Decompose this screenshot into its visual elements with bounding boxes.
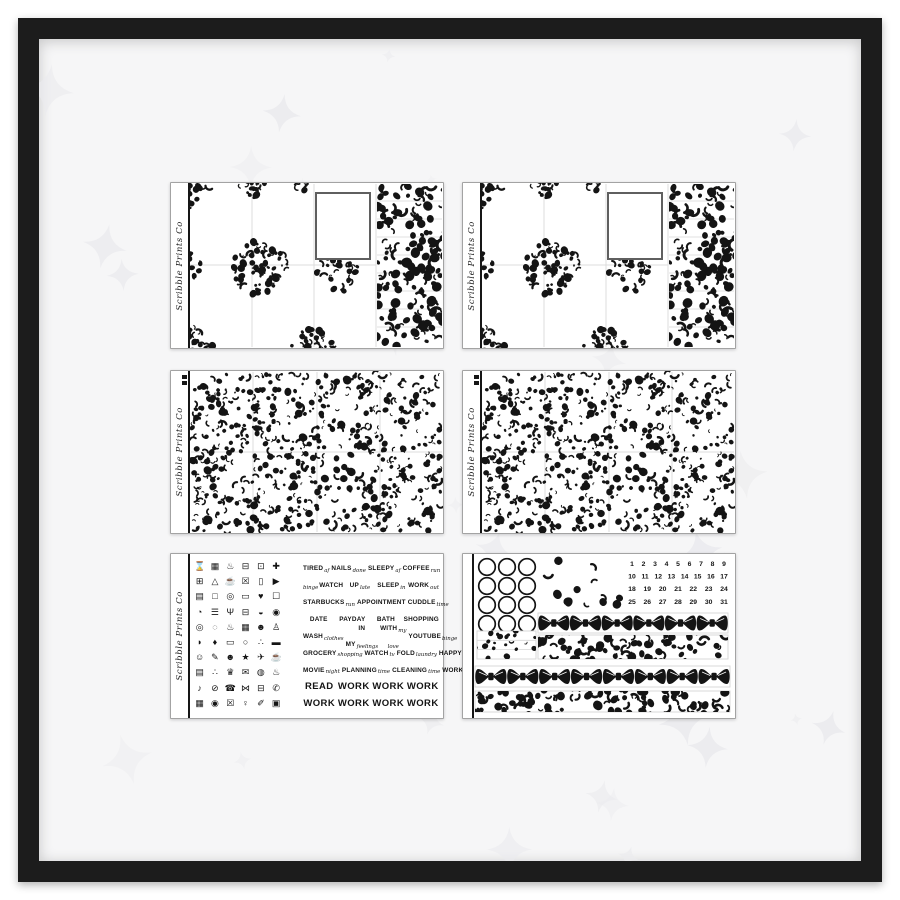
spot-blob [499, 403, 507, 411]
spot-crescent [579, 400, 581, 404]
spot-blob [588, 470, 593, 474]
spot-blob [407, 457, 410, 460]
spot-blob [190, 424, 196, 431]
spot-crescent [417, 430, 418, 433]
spot-crescent [194, 487, 199, 489]
spot-blob [325, 263, 330, 268]
spot-blob [336, 419, 347, 430]
spot-crescent [263, 251, 266, 258]
spot-crescent [530, 501, 533, 502]
spot-crescent [515, 522, 522, 524]
spot-blob [482, 206, 484, 209]
spot-blob [486, 196, 493, 202]
spot-crescent [506, 445, 510, 448]
spot-crescent [391, 398, 394, 404]
spot-crescent [194, 514, 198, 515]
spot-crescent [713, 331, 716, 334]
spot-crescent [730, 374, 731, 376]
spot-crescent [663, 452, 666, 454]
spot-crescent [706, 199, 712, 201]
spot-crescent [687, 504, 688, 507]
spot-blob [340, 287, 348, 294]
spot-crescent [395, 504, 396, 507]
spot-blob [508, 477, 512, 481]
spot-crescent [219, 444, 220, 446]
spot-crescent [705, 208, 708, 214]
eye-icon: ◉ [268, 605, 283, 620]
spot-crescent [264, 491, 265, 494]
spot-blob [612, 403, 619, 409]
label-main-word: WORK [338, 698, 370, 709]
spot-blob [190, 327, 193, 333]
paw-print-icon: ∴ [207, 665, 222, 680]
play-button-icon: ▶ [268, 574, 283, 589]
spot-blob [397, 417, 406, 425]
spot-blob [323, 345, 327, 348]
spot-blob [229, 400, 233, 404]
spot-blob [296, 470, 301, 474]
spot-blob [211, 492, 219, 500]
spot-blob [370, 493, 379, 503]
spot-blob [600, 409, 603, 413]
paint-cup-icon: ◔ [192, 605, 207, 620]
spot-crescent [257, 247, 261, 248]
spot-blob [632, 475, 640, 483]
spot-blob [246, 525, 255, 533]
spot-blob [267, 379, 273, 385]
spot-crescent [511, 444, 512, 446]
spot-blob [700, 239, 710, 248]
hair-bow-icon: ⋈ [238, 681, 253, 696]
brand-name: Scribble Prints Co [467, 221, 477, 311]
date-number-sticker: 4 [665, 561, 669, 568]
brand-name: Scribble Prints Co [175, 591, 185, 681]
spot-blob [527, 434, 532, 438]
spot-crescent [414, 338, 419, 339]
spot-blob [571, 446, 575, 450]
spot-blob [589, 475, 593, 479]
spot-blob [235, 434, 240, 438]
bow-knot [648, 673, 653, 680]
date-number-sticker: 6 [688, 561, 692, 568]
spot-blob [619, 275, 626, 282]
spot-crescent [657, 423, 660, 426]
sticker-sheet-date-dots-washi: 1234567891011121314151617181920212223242… [462, 553, 736, 719]
spot-blob [238, 448, 244, 454]
spot-blob [662, 493, 671, 503]
sticker-word-label: UPlate [344, 575, 375, 591]
spot-blob [424, 339, 429, 344]
spot-blob [634, 509, 638, 513]
spot-crescent [706, 299, 708, 305]
spot-blob [424, 526, 433, 533]
spot-crescent [576, 267, 580, 270]
spot-crescent [206, 415, 208, 416]
spot-crescent [323, 420, 324, 423]
lotion-bottle-icon: ♨ [223, 559, 238, 574]
spot-crescent [665, 371, 670, 374]
picture-frame: Scribble Prints Co Scribble Prints Co Sc… [18, 18, 882, 882]
spot-crescent [613, 461, 615, 467]
spot-blob [694, 424, 700, 430]
bow-knot [552, 673, 557, 680]
spot-crescent [614, 338, 616, 341]
label-main-word: PLANNING [342, 667, 377, 674]
spot-blob [482, 424, 488, 431]
sticker-sheet-full-pattern-left: Scribble Prints Co [170, 370, 444, 534]
spot-blob [287, 422, 291, 426]
spot-blob [641, 427, 648, 434]
spot-blob [694, 316, 703, 325]
spot-blob [426, 215, 434, 223]
date-number-sticker: 22 [690, 586, 698, 593]
date-number-sticker: 2 [642, 561, 646, 568]
spot-blob [559, 379, 565, 385]
spot-blob [312, 407, 315, 409]
spot-crescent [202, 453, 204, 458]
spot-crescent [734, 232, 735, 235]
spot-crescent [503, 377, 507, 381]
spot-blob [403, 396, 407, 400]
kettle-icon: ♨ [268, 665, 283, 680]
spot-blob [392, 483, 396, 488]
brand-name: Scribble Prints Co [175, 407, 185, 497]
spot-crescent [349, 528, 350, 532]
spot-blob [537, 433, 542, 438]
sticker-sheet-weekly-boxes-right: Scribble Prints Co [462, 182, 736, 349]
spot-blob [204, 493, 209, 497]
spot-blob [587, 646, 594, 652]
spot-blob [221, 428, 226, 433]
sticker-word-label: WORKout [407, 575, 440, 591]
date-number-sticker: 17 [720, 574, 728, 581]
doodle-icons-grid: ⌛▦♨⊟⊡✚⊞△☕☒▯▶▤□◎▭♥☐◔☰Ψ⊟◒◉◎◌♨▦☻♙◗♦▭○∴▬☺✎☻★… [192, 559, 284, 711]
spot-blob [537, 440, 542, 445]
spot-blob [556, 287, 563, 295]
label-main-word: WORK [303, 698, 335, 709]
spot-crescent [215, 393, 216, 395]
sticker-word-label: CUDDLEtime [407, 592, 450, 608]
date-number-sticker: 1 [630, 561, 634, 568]
spot-crescent [498, 415, 500, 416]
sticker-word-label: MOVIEnight [302, 660, 341, 676]
spot-crescent [207, 509, 209, 514]
money-bill-icon: ▦ [207, 559, 222, 574]
spot-crescent [441, 309, 443, 313]
spot-blob [607, 378, 614, 385]
spot-crescent [574, 252, 578, 257]
spot-crescent [380, 504, 384, 507]
spot-blob [410, 475, 416, 480]
spot-crescent [416, 204, 421, 206]
spot-crescent [370, 528, 372, 529]
date-number-sticker: 26 [644, 599, 652, 606]
spot-blob [700, 464, 705, 469]
spot-blob [482, 327, 485, 333]
sticker-word-label: CLEANINGtime [391, 660, 441, 676]
date-number-sticker: 16 [707, 574, 715, 581]
label-script-suffix: done [353, 568, 366, 574]
spot-crescent [503, 462, 507, 464]
spot-blob [304, 498, 308, 503]
label-script-suffix: late [360, 585, 370, 591]
spot-blob [398, 528, 403, 533]
spot-blob [709, 488, 715, 493]
spot-blob [666, 434, 671, 439]
date-number-sticker: 25 [628, 599, 636, 606]
spot-blob [340, 475, 348, 483]
telephone-icon: ☎ [223, 681, 238, 696]
spot-blob [202, 465, 214, 477]
label-script-suffix: night [326, 669, 340, 675]
spot-crescent [499, 509, 501, 514]
spot-crescent [423, 409, 424, 411]
spot-crescent [202, 492, 204, 493]
spot-crescent [287, 416, 289, 417]
spot-blob [293, 388, 298, 394]
spot-crescent [536, 481, 541, 484]
spot-crescent [282, 252, 286, 257]
sticker-word-label: TIREDaf [302, 558, 330, 574]
spot-blob [572, 373, 575, 376]
spot-blob [440, 252, 443, 260]
spot-crescent [553, 434, 555, 438]
spot-blob [563, 265, 569, 271]
spot-crescent [717, 488, 720, 489]
spot-crescent [355, 405, 357, 410]
sticker-word-label: SLEEPYaf [367, 558, 402, 574]
spot-crescent [650, 374, 652, 380]
spot-blob [661, 475, 670, 484]
spot-crescent [241, 513, 245, 515]
spot-crescent [705, 383, 711, 386]
spot-crescent [624, 500, 630, 502]
monitor-icon: ▭ [223, 635, 238, 650]
spot-blob [245, 440, 250, 445]
label-main-word: WASH [303, 633, 323, 640]
spot-blob [245, 413, 253, 421]
spot-blob [273, 468, 279, 474]
spot-blob [637, 277, 643, 284]
spot-blob [284, 467, 287, 470]
spot-blob [291, 397, 296, 402]
spot-blob [513, 428, 518, 433]
hand-phone-icon: ✆ [268, 681, 283, 696]
spot-blob [264, 287, 271, 295]
spot-crescent [507, 393, 508, 395]
spot-blob [675, 256, 680, 261]
label-main-word: STARBUCKS [303, 599, 344, 606]
spot-blob [349, 427, 356, 434]
spot-crescent [395, 399, 396, 403]
spot-crescent [223, 397, 227, 399]
spot-crescent [726, 275, 728, 279]
date-number-sticker: 3 [653, 561, 657, 568]
spot-blob [282, 483, 286, 487]
spot-blob [254, 430, 260, 437]
spot-crescent [506, 491, 510, 492]
spot-crescent [294, 494, 295, 497]
spot-blob [324, 494, 327, 497]
spot-blob [670, 315, 677, 322]
no-symbol-icon: ⊘ [207, 681, 222, 696]
spot-crescent [315, 393, 316, 396]
spot-blob [592, 447, 595, 450]
spot-blob [494, 529, 498, 533]
spot-crescent [214, 445, 218, 448]
spot-blob [326, 404, 330, 407]
spot-crescent [433, 443, 435, 444]
spot-blob [374, 384, 378, 388]
spot-crescent [539, 375, 543, 381]
spot-crescent [242, 488, 244, 493]
spot-crescent [486, 514, 490, 515]
spot-blob [485, 388, 489, 392]
sticker-word-label: FOLDlaundry [396, 643, 438, 659]
spot-blob [695, 396, 699, 400]
spot-crescent [689, 525, 691, 527]
vinyl-disc-icon: ◉ [207, 696, 222, 711]
spot-crescent [679, 502, 681, 506]
label-script-suffix: binge [442, 636, 457, 642]
spot-crescent [322, 454, 324, 458]
spot-blob [207, 403, 215, 411]
spot-blob [216, 391, 222, 397]
spot-blob [713, 502, 716, 506]
spot-crescent [203, 475, 207, 477]
label-row: READWORKWORKWORK [302, 676, 440, 693]
spot-blob [284, 388, 291, 396]
spot-blob [266, 396, 271, 401]
spot-crescent [301, 404, 304, 412]
spot-crescent [684, 329, 688, 335]
spot-blob [681, 464, 686, 469]
spot-blob [565, 468, 571, 474]
spot-crescent [295, 183, 299, 184]
label-script-suffix: shopping [337, 652, 362, 658]
date-number-sticker: 23 [705, 586, 713, 593]
spot-blob [277, 250, 284, 257]
spot-blob [388, 506, 391, 510]
spot-crescent [564, 507, 566, 513]
brand-spine: Scribble Prints Co [171, 371, 190, 533]
date-number-sticker: 5 [676, 561, 680, 568]
spot-crescent [555, 251, 558, 258]
spot-blob [190, 183, 193, 189]
spot-crescent [195, 401, 197, 407]
spot-crescent [334, 521, 337, 528]
label-script-suffix: af [324, 568, 329, 574]
weekly-boxes-artwork [190, 183, 443, 348]
spot-blob [614, 517, 623, 526]
sparkle-star [232, 750, 254, 772]
spot-crescent [398, 488, 400, 493]
dot-circle-sticker [479, 578, 496, 595]
sticker-word-label: STARBUCKSrun [302, 592, 356, 608]
spot-crescent [498, 421, 501, 426]
spot-blob [216, 433, 220, 437]
spot-blob [537, 413, 545, 421]
spot-crescent [669, 426, 670, 429]
spot-crescent [304, 445, 305, 448]
spot-crescent [425, 476, 429, 478]
spot-blob [576, 388, 583, 396]
spot-crescent [433, 335, 436, 339]
bow-knot [520, 673, 525, 680]
spot-blob [717, 412, 721, 416]
spot-crescent [414, 299, 416, 305]
bow-knot [711, 673, 716, 680]
spot-crescent [516, 465, 518, 470]
date-number-sticker: 29 [690, 599, 698, 606]
spot-blob [661, 408, 665, 412]
spot-crescent [315, 343, 320, 346]
spot-blob [594, 377, 598, 381]
spot-blob [389, 464, 394, 469]
spot-blob [380, 456, 386, 462]
spot-crescent [412, 496, 416, 500]
spot-blob [546, 284, 549, 287]
spot-crescent [626, 475, 630, 479]
spot-blob [482, 183, 485, 189]
label-row: MOVIEnightPLANNINGtimeCLEANINGtimeWORKla… [302, 659, 440, 676]
spot-crescent [684, 229, 687, 234]
spot-blob [382, 379, 385, 382]
spot-blob [244, 243, 249, 249]
spot-crescent [238, 184, 240, 188]
spot-blob [563, 386, 571, 394]
spot-blob [585, 388, 590, 394]
spot-blob [421, 502, 424, 506]
person-icon: ♀ [238, 696, 253, 711]
label-main-word: WORK [408, 582, 429, 589]
photo-box [608, 193, 662, 259]
spot-crescent [517, 532, 522, 533]
spot-crescent [371, 452, 374, 454]
spot-crescent [549, 247, 553, 248]
spot-blob [554, 421, 558, 424]
laptop-icon: ▭ [238, 589, 253, 604]
spot-blob [681, 268, 694, 280]
spot-blob [546, 430, 552, 437]
picnic-basket-icon: ▦ [192, 696, 207, 711]
spot-crescent [225, 508, 227, 513]
sparkle-star [95, 728, 158, 791]
spot-blob [582, 343, 587, 348]
spot-blob [667, 520, 674, 527]
label-main-word: WORK [442, 667, 463, 674]
bow-knot [488, 673, 493, 680]
spot-crescent [585, 510, 590, 512]
spot-crescent [517, 508, 519, 513]
full-pattern-artwork [190, 371, 443, 533]
spot-blob [408, 239, 418, 248]
spot-crescent [271, 439, 272, 442]
spot-blob [521, 400, 525, 404]
spot-blob [245, 433, 250, 438]
label-main-word: FOLD [397, 650, 415, 657]
spot-crescent [202, 500, 205, 504]
spot-blob [425, 412, 429, 416]
date-number-sticker: 8 [711, 561, 715, 568]
spot-crescent [621, 275, 624, 276]
spot-blob [289, 446, 294, 451]
brand-spine: Scribble Prints Co [171, 554, 190, 718]
spot-crescent [533, 513, 537, 515]
spot-blob [699, 457, 702, 460]
spot-crescent [488, 490, 490, 495]
spot-blob [718, 215, 726, 223]
